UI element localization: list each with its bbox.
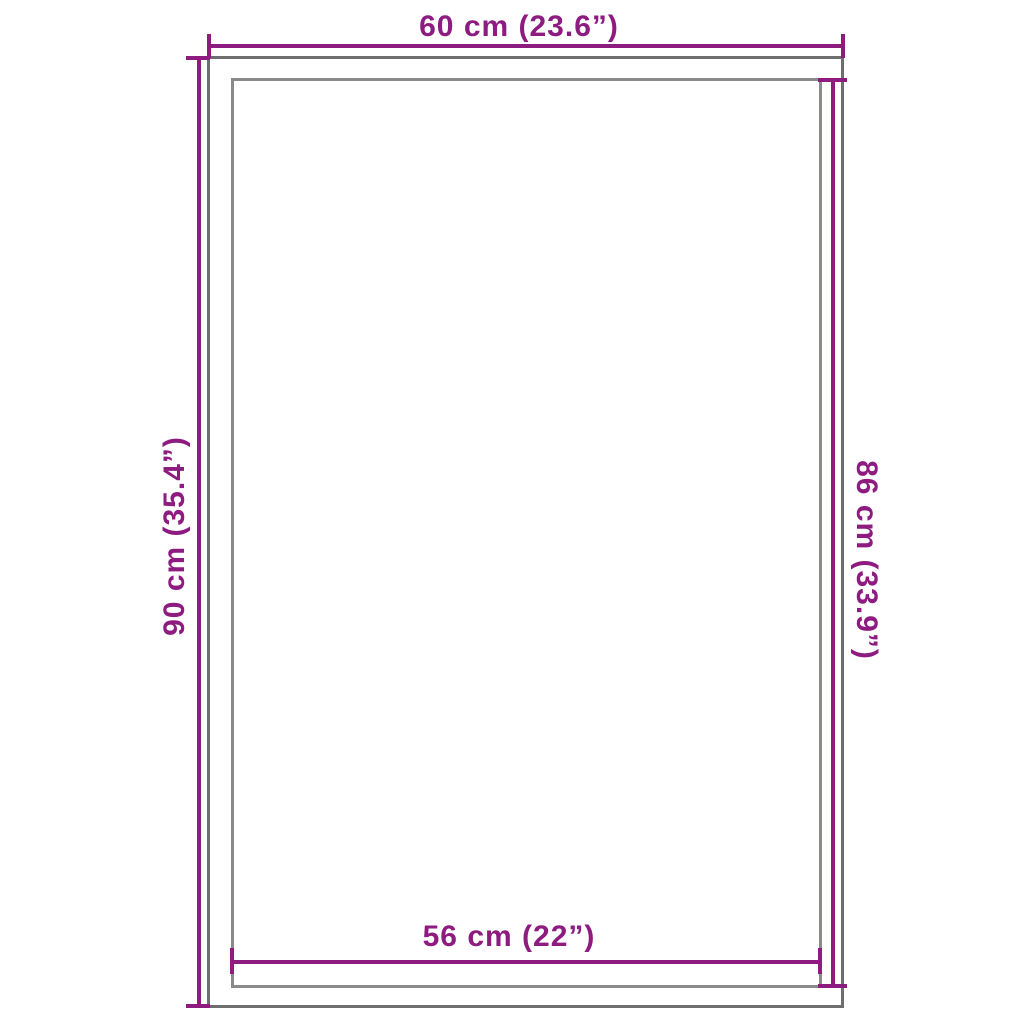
left-dimension-tick-bottom xyxy=(186,1004,210,1008)
top-dimension-line xyxy=(207,44,845,48)
left-dimension-line xyxy=(197,56,201,1008)
right-dimension-tick-top xyxy=(818,78,847,82)
dimension-diagram: 60 cm (23.6”) 90 cm (35.4”) 86 cm (33.9”… xyxy=(0,0,1024,1024)
left-dimension-label: 90 cm (35.4”) xyxy=(160,436,190,636)
bottom-dimension-tick-left xyxy=(230,948,234,974)
bottom-dimension-tick-right xyxy=(818,948,822,974)
left-dimension-tick-top xyxy=(186,56,210,60)
right-dimension-line xyxy=(831,78,835,988)
bottom-dimension-line xyxy=(230,960,822,964)
right-dimension-tick-bottom xyxy=(818,984,847,988)
top-dimension-tick-left xyxy=(207,34,211,58)
bottom-dimension-label: 56 cm (22”) xyxy=(423,922,596,952)
top-dimension-label: 60 cm (23.6”) xyxy=(419,12,619,42)
top-dimension-tick-right xyxy=(841,34,845,58)
right-dimension-label: 86 cm (33.9”) xyxy=(851,460,881,660)
inner-rectangle-outline xyxy=(231,78,822,988)
